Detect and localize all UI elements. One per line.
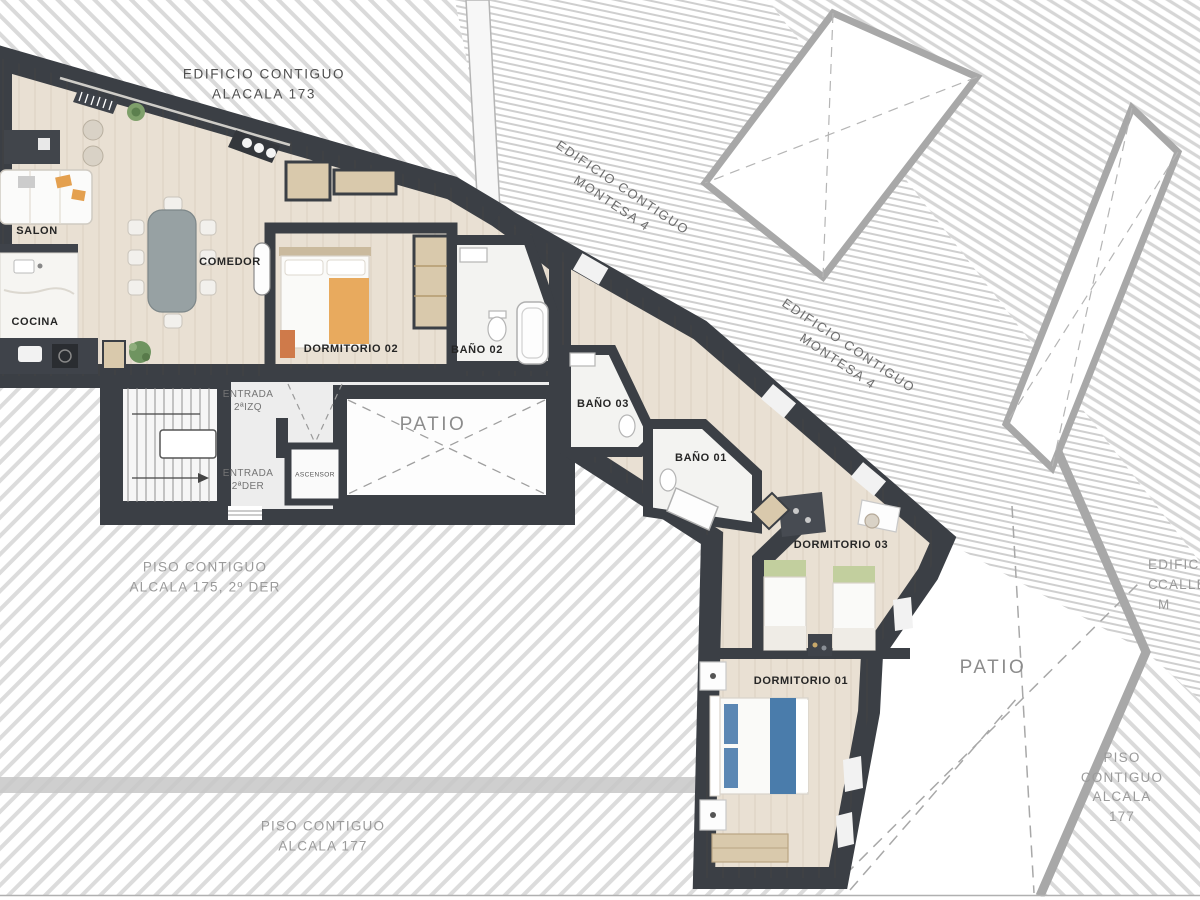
pillow — [724, 704, 738, 744]
chair — [128, 250, 144, 265]
floor-plan-drawing — [0, 0, 1200, 900]
chair — [128, 220, 144, 235]
bed-blanket — [329, 278, 369, 344]
street-band — [0, 777, 706, 793]
bench — [280, 330, 295, 358]
cabinet — [103, 341, 125, 369]
bed-headboard — [279, 247, 371, 256]
chair — [200, 280, 216, 295]
sink — [14, 260, 34, 273]
entrance-door-opening — [228, 506, 262, 520]
stair-landing — [160, 430, 216, 458]
room-bano-02 — [452, 240, 553, 366]
patio-left-area — [340, 392, 553, 502]
toilet — [660, 469, 676, 491]
toilet — [619, 415, 635, 437]
side-table — [83, 120, 103, 140]
chair — [200, 250, 216, 265]
chair — [128, 280, 144, 295]
toilet — [488, 317, 506, 341]
dining-table — [148, 210, 196, 312]
single-bed-headboard — [833, 566, 875, 583]
chair — [164, 197, 182, 211]
single-bed-headboard — [764, 560, 806, 577]
side-table — [83, 146, 103, 166]
sink — [570, 353, 595, 366]
nightstand — [808, 634, 832, 656]
bed-headboard — [710, 696, 720, 796]
stairs — [116, 382, 224, 508]
chair — [865, 514, 879, 528]
radiator — [254, 243, 270, 295]
closet — [334, 170, 396, 194]
chair — [164, 314, 182, 328]
oven — [52, 344, 78, 368]
wardrobe — [414, 236, 448, 328]
closet — [286, 162, 330, 200]
chair — [200, 220, 216, 235]
sink — [460, 248, 487, 262]
bed-runner — [770, 698, 796, 794]
tv-unit — [4, 130, 60, 164]
sink — [18, 346, 42, 362]
kitchen-counter — [0, 338, 98, 374]
floor-plan-page: EDIFICIO CONTIGUO ALACALA 173 EDIFICIO C… — [0, 0, 1200, 900]
pillow — [724, 748, 738, 788]
